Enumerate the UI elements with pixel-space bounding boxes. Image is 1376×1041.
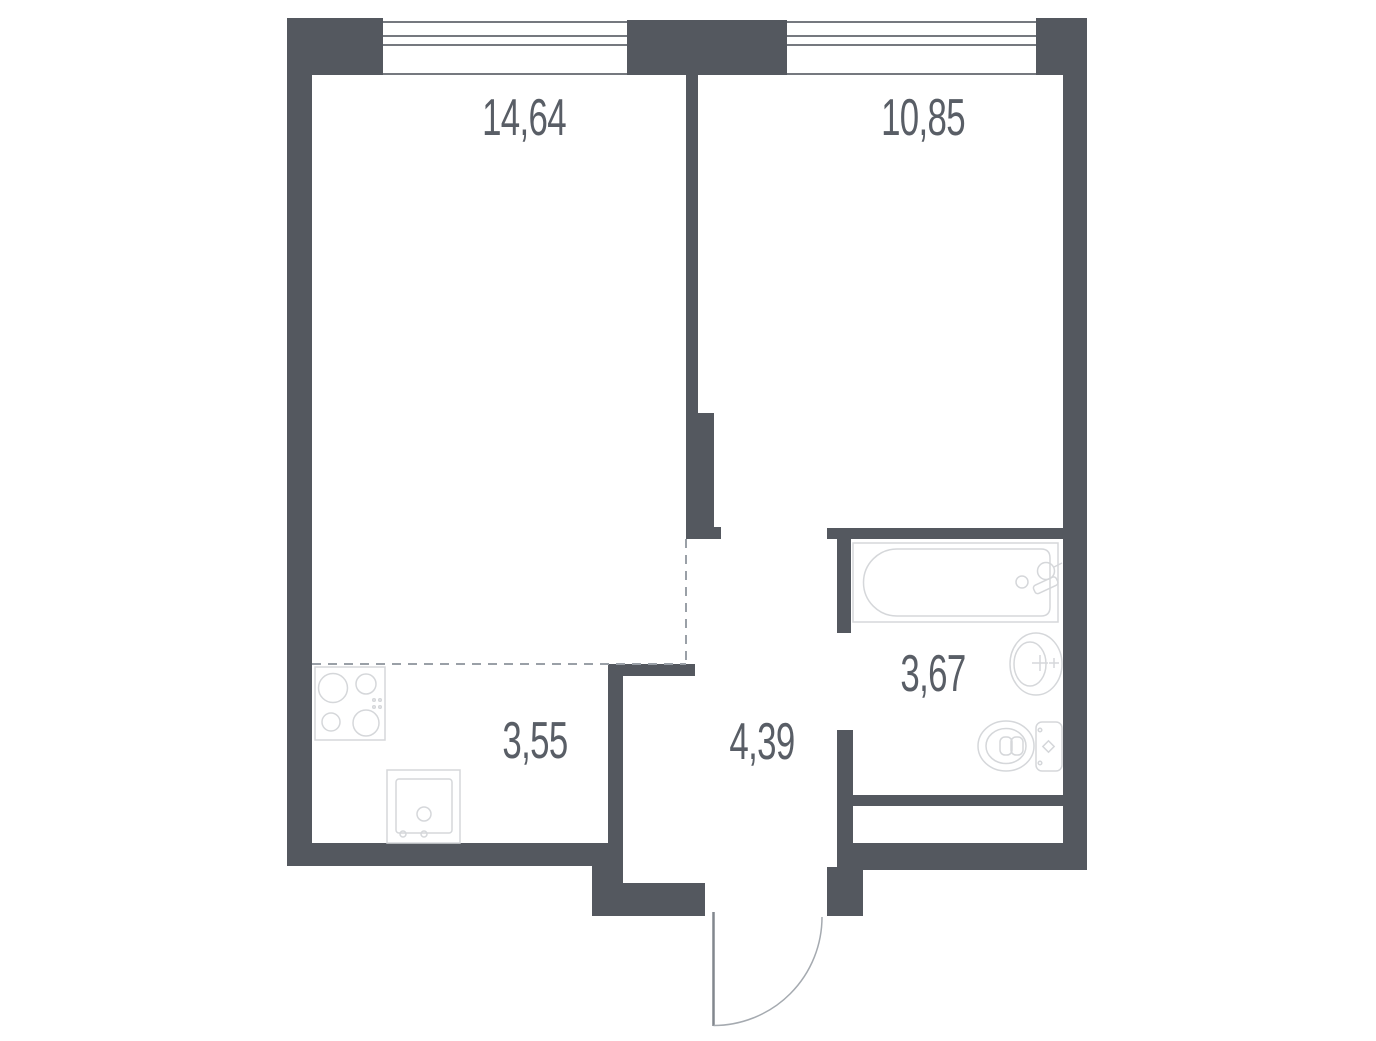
wall-kitchen-stub — [608, 664, 695, 676]
wall-bottom-kitchen — [288, 843, 608, 866]
wall-bathroom-bottom — [851, 795, 1063, 806]
room-area-label-living-room: 14,64 — [482, 88, 566, 148]
floor-plan: 14,64 10,85 3,67 3,55 4,39 — [0, 0, 1376, 1041]
wall-bathroom-left-upper — [837, 539, 851, 633]
kitchen-sink-icon — [387, 770, 460, 843]
wall-bathroom-top — [827, 528, 1063, 539]
room-area-label-kitchen: 3,55 — [502, 711, 567, 771]
room-area-label-bathroom: 3,67 — [900, 644, 965, 704]
cooktop-icon — [315, 667, 385, 740]
washbasin-icon — [1010, 633, 1062, 695]
wall-entrance-left — [592, 883, 705, 916]
wall-room-divider — [686, 75, 698, 415]
wall-left — [287, 18, 312, 866]
wall-top-middle-block — [627, 20, 787, 75]
wall-divider-pillar — [686, 413, 714, 527]
window-living-icon — [383, 22, 632, 74]
window-bedroom-icon — [782, 22, 1036, 74]
wall-pillar-foot — [686, 527, 721, 539]
room-area-label-hallway: 4,39 — [729, 712, 794, 772]
wall-bottom-right — [848, 843, 1086, 870]
floor-plan-drawing — [0, 0, 1376, 1041]
room-area-label-bedroom: 10,85 — [881, 88, 965, 148]
wall-right — [1063, 18, 1087, 870]
entrance-door-swing-icon — [714, 912, 823, 1026]
walls — [287, 18, 1087, 916]
bathtub-icon — [853, 543, 1062, 622]
kitchen-zone-boundary — [312, 539, 686, 664]
toilet-icon — [978, 721, 1062, 771]
wall-entrance-right-jamb — [827, 867, 863, 916]
